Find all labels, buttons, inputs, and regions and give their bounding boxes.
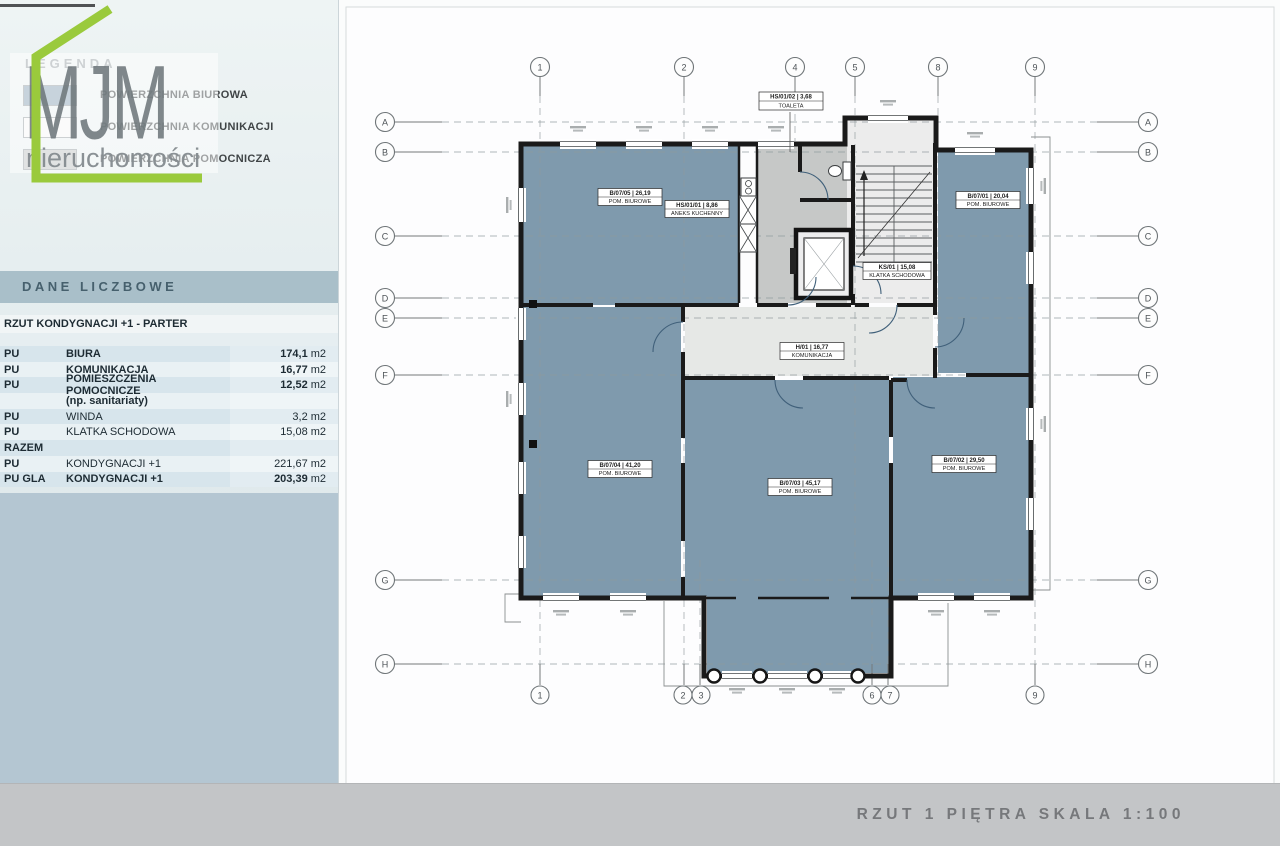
svg-text:HS/01/02 | 3,68: HS/01/02 | 3,68: [770, 95, 812, 101]
column: [852, 670, 865, 683]
room-label-aneks: HS/01/01 | 8,86 ANEKS KUCHENNY: [665, 201, 729, 218]
room-label-biurowe-05: B/07/05 | 26,19 POM. BIUROWE: [598, 189, 662, 206]
grid-bubble: D: [376, 289, 395, 308]
svg-text:B/07/02 | 29,50: B/07/02 | 29,50: [943, 458, 985, 464]
svg-text:H/01 | 16,77: H/01 | 16,77: [796, 345, 829, 351]
sidebar-color-block: [0, 493, 338, 783]
table-row: PUKLATKA SCHODOWA 15,08m2: [0, 424, 338, 440]
svg-text:C: C: [1145, 231, 1152, 241]
grid-bubble: 9: [1026, 686, 1044, 704]
svg-text:B/07/04 | 41,20: B/07/04 | 41,20: [599, 463, 641, 469]
grid-bubble: E: [376, 309, 395, 328]
room-label-komunikacja: H/01 | 16,77 KOMUNIKACJA: [780, 343, 844, 360]
svg-text:8: 8: [935, 62, 940, 72]
svg-text:A: A: [382, 117, 388, 127]
grid-bubble: 8: [929, 58, 948, 77]
room-label-toaleta: HS/01/02 | 3,68 TOALETA: [759, 92, 823, 110]
svg-text:POM. BIUROWE: POM. BIUROWE: [943, 466, 986, 472]
svg-text:H: H: [382, 659, 389, 669]
svg-text:6: 6: [869, 690, 874, 700]
grid-bubble: H: [376, 655, 395, 674]
svg-text:F: F: [382, 370, 388, 380]
table-row: RAZEM: [0, 440, 338, 456]
grid-bubble: 2: [675, 58, 694, 77]
room-label-biurowe-02: B/07/02 | 29,50 POM. BIUROWE: [932, 456, 996, 473]
column: [708, 670, 721, 683]
table-row: PUWINDA 3,2m2: [0, 409, 338, 425]
column: [809, 670, 822, 683]
column: [754, 670, 767, 683]
svg-text:B/07/01 | 20,04: B/07/01 | 20,04: [967, 194, 1009, 200]
svg-text:POM. BIUROWE: POM. BIUROWE: [779, 489, 822, 495]
grid-bubble: 1: [531, 686, 549, 704]
table-section-row: RZUT KONDYGNACJI +1 - PARTER: [0, 315, 338, 333]
grid-bubble: G: [376, 571, 395, 590]
svg-text:KS/01 | 15,08: KS/01 | 15,08: [879, 265, 916, 271]
grid-bubble: 1: [531, 58, 550, 77]
sheet-title: RZUT 1 PIĘTRA SKALA 1:100: [857, 806, 1185, 824]
svg-text:E: E: [1145, 313, 1151, 323]
svg-text:D: D: [1145, 293, 1152, 303]
table-row: PUBIURA 174,1m2: [0, 346, 338, 362]
svg-text:TOALETA: TOALETA: [779, 104, 804, 110]
grid-bubble: 6: [863, 686, 881, 704]
shaft-hatch: [740, 196, 757, 252]
svg-text:1: 1: [537, 690, 542, 700]
kitchen-sink: [741, 178, 756, 196]
svg-text:3: 3: [698, 690, 703, 700]
table-row: PUPOMIESZCZENIA POMOCNICZE 12,52m2: [0, 377, 338, 393]
grid-bubble: G: [1139, 571, 1158, 590]
svg-text:E: E: [382, 313, 388, 323]
svg-text:2: 2: [680, 690, 685, 700]
svg-text:7: 7: [887, 690, 892, 700]
svg-text:KLATKA SCHODOWA: KLATKA SCHODOWA: [869, 273, 925, 279]
title-band: RZUT 1 PIĘTRA SKALA 1:100: [0, 783, 1280, 846]
svg-text:B: B: [1145, 147, 1151, 157]
table-row: PUKONDYGNACJI +1 221,67m2: [0, 456, 338, 472]
svg-text:POM. BIUROWE: POM. BIUROWE: [967, 202, 1010, 208]
table-row: (np. sanitariaty): [0, 393, 338, 409]
grid-bubble: A: [376, 113, 395, 132]
grid-bubble: 3: [692, 686, 710, 704]
svg-text:4: 4: [792, 62, 797, 72]
top-accent-line: [0, 4, 95, 7]
svg-text:G: G: [1144, 575, 1151, 585]
grid-bubble: 5: [846, 58, 865, 77]
svg-text:F: F: [1145, 370, 1151, 380]
svg-text:POM. BIUROWE: POM. BIUROWE: [609, 199, 652, 205]
grid-bubble: H: [1139, 655, 1158, 674]
svg-text:HS/01/01 | 8,86: HS/01/01 | 8,86: [676, 203, 718, 209]
svg-text:9: 9: [1032, 690, 1037, 700]
grid-bubble: D: [1139, 289, 1158, 308]
elevator: [790, 230, 851, 298]
data-section-title: DANE LICZBOWE: [0, 271, 338, 303]
svg-text:1: 1: [537, 62, 542, 72]
grid-bubble: C: [376, 227, 395, 246]
logo-roof-icon: [0, 0, 220, 195]
grid-bubble: F: [376, 366, 395, 385]
svg-text:2: 2: [681, 62, 686, 72]
grid-bubble: B: [376, 143, 395, 162]
svg-text:C: C: [382, 231, 389, 241]
grid-bubble: E: [1139, 309, 1158, 328]
room-label-klatka: KS/01 | 15,08 KLATKA SCHODOWA: [863, 263, 931, 280]
svg-text:G: G: [381, 575, 388, 585]
svg-text:B/07/05 | 26,19: B/07/05 | 26,19: [609, 191, 651, 197]
grid-bubble: C: [1139, 227, 1158, 246]
svg-text:H: H: [1145, 659, 1152, 669]
svg-text:9: 9: [1032, 62, 1037, 72]
grid-bubble: B: [1139, 143, 1158, 162]
svg-text:A: A: [1145, 117, 1151, 127]
grid-bubble: A: [1139, 113, 1158, 132]
grid-bubble: F: [1139, 366, 1158, 385]
area-table: RZUT KONDYGNACJI +1 - PARTER PUBIURA 174…: [0, 315, 338, 487]
info-sidebar: LEGENDA POWIERZCHNIA BIUROWA POWIERZCHNI…: [0, 0, 339, 846]
grid-bubble: 7: [881, 686, 899, 704]
room-label-biurowe-03: B/07/03 | 45,17 POM. BIUROWE: [768, 479, 832, 496]
room-label-biurowe-04: B/07/04 | 41,20 POM. BIUROWE: [588, 461, 652, 478]
svg-text:ANEKS KUCHENNY: ANEKS KUCHENNY: [671, 211, 723, 217]
svg-text:B: B: [382, 147, 388, 157]
grid-bubble: 4: [786, 58, 805, 77]
floorplan-sheet: B/07/05 | 26,19 POM. BIUROWE HS/01/01 | …: [0, 0, 1280, 846]
svg-text:D: D: [382, 293, 389, 303]
room-label-biurowe-01: B/07/01 | 20,04 POM. BIUROWE: [956, 192, 1020, 209]
grid-bubble: 9: [1026, 58, 1045, 77]
svg-text:5: 5: [852, 62, 857, 72]
svg-text:POM. BIUROWE: POM. BIUROWE: [599, 471, 642, 477]
grid-bubble: 2: [674, 686, 692, 704]
svg-text:B/07/03 | 45,17: B/07/03 | 45,17: [779, 481, 821, 487]
table-row: PU GLAKONDYGNACJI +1 203,39m2: [0, 472, 338, 488]
table-spacer-row: [0, 333, 338, 346]
svg-text:KOMUNIKACJA: KOMUNIKACJA: [792, 353, 833, 359]
